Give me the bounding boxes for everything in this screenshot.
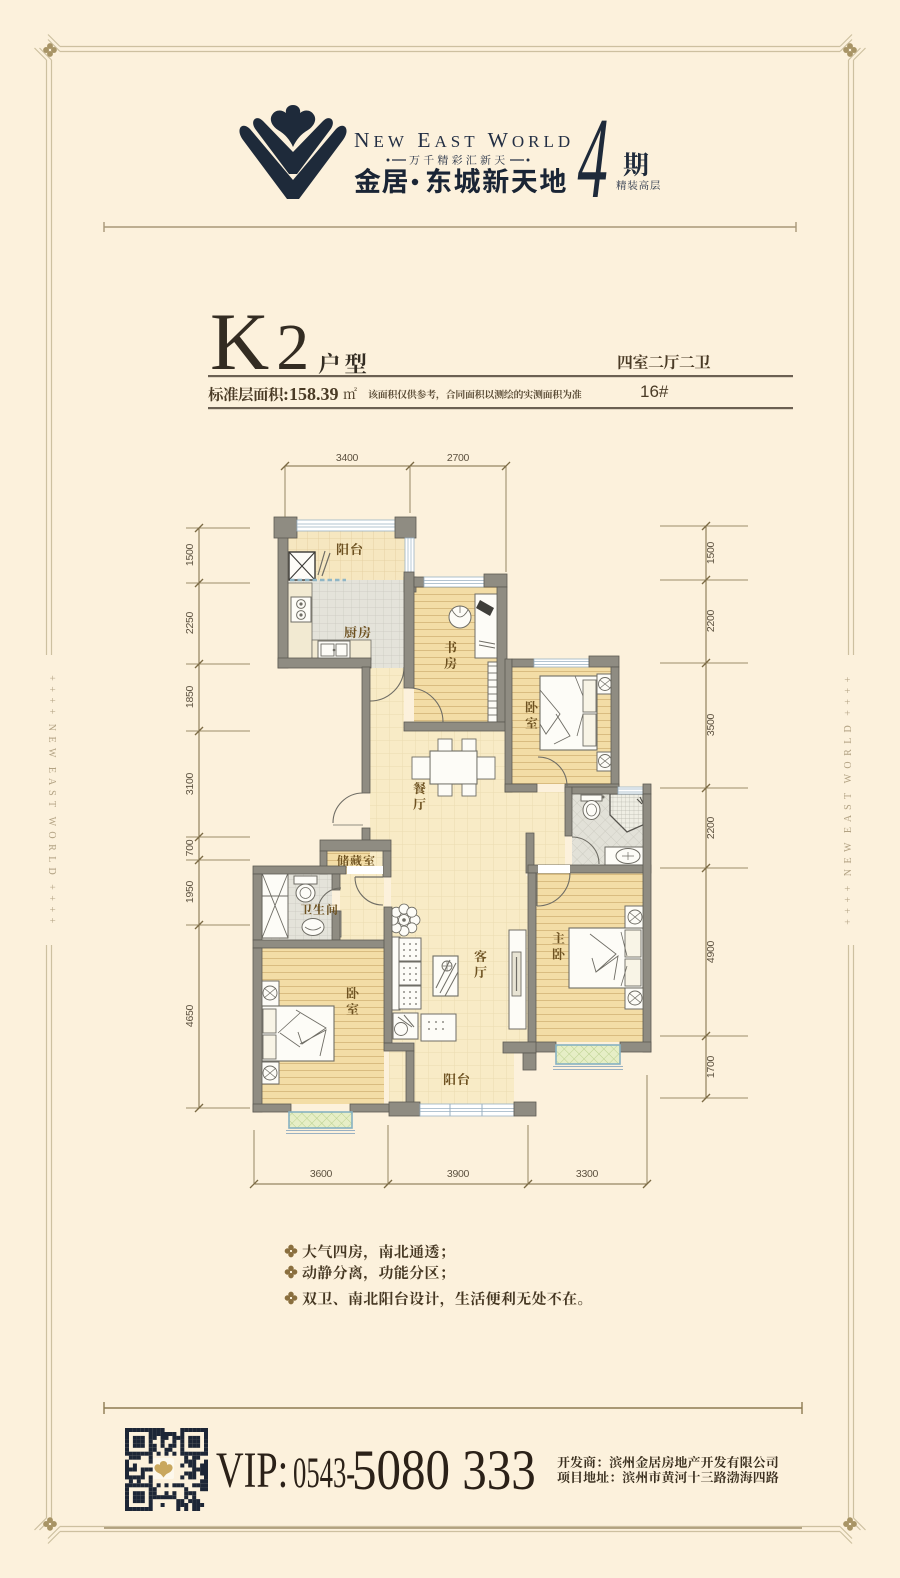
svg-text:4900: 4900 [705,940,717,963]
svg-text:+ + + + N E W E A S T W O R: + + + + N E W E A S T W O R L D + + + + [46,675,57,925]
svg-text:4: 4 [576,95,610,223]
svg-text:3500: 3500 [705,713,717,736]
svg-text:1500: 1500 [184,543,196,566]
svg-text::158.39: :158.39 [283,384,339,404]
svg-text:1850: 1850 [184,685,196,708]
svg-text:3100: 3100 [184,772,196,795]
svg-text:16#: 16# [640,382,669,401]
svg-text:4650: 4650 [184,1004,196,1027]
svg-text:2700: 2700 [447,452,470,464]
svg-text:1950: 1950 [184,880,196,903]
svg-text:3600: 3600 [310,1168,333,1180]
svg-text:700: 700 [184,839,196,856]
svg-text:0543-: 0543- [293,1449,355,1497]
svg-text:2200: 2200 [705,609,717,632]
svg-text:NEW EAST WORLD: NEW EAST WORLD [354,128,574,152]
svg-text:5080 333: 5080 333 [352,1440,536,1502]
svg-text:3300: 3300 [576,1168,599,1180]
svg-text:1700: 1700 [705,1055,717,1078]
svg-text:3900: 3900 [447,1168,470,1180]
svg-text:3400: 3400 [336,452,359,464]
svg-text:2200: 2200 [705,816,717,839]
svg-text:2250: 2250 [184,611,196,634]
svg-text:1500: 1500 [705,541,717,564]
svg-text:+ + + + N E W E A S T W O R: + + + + N E W E A S T W O R L D + + + + [843,675,854,925]
svg-text:VIP:: VIP: [216,1442,288,1499]
